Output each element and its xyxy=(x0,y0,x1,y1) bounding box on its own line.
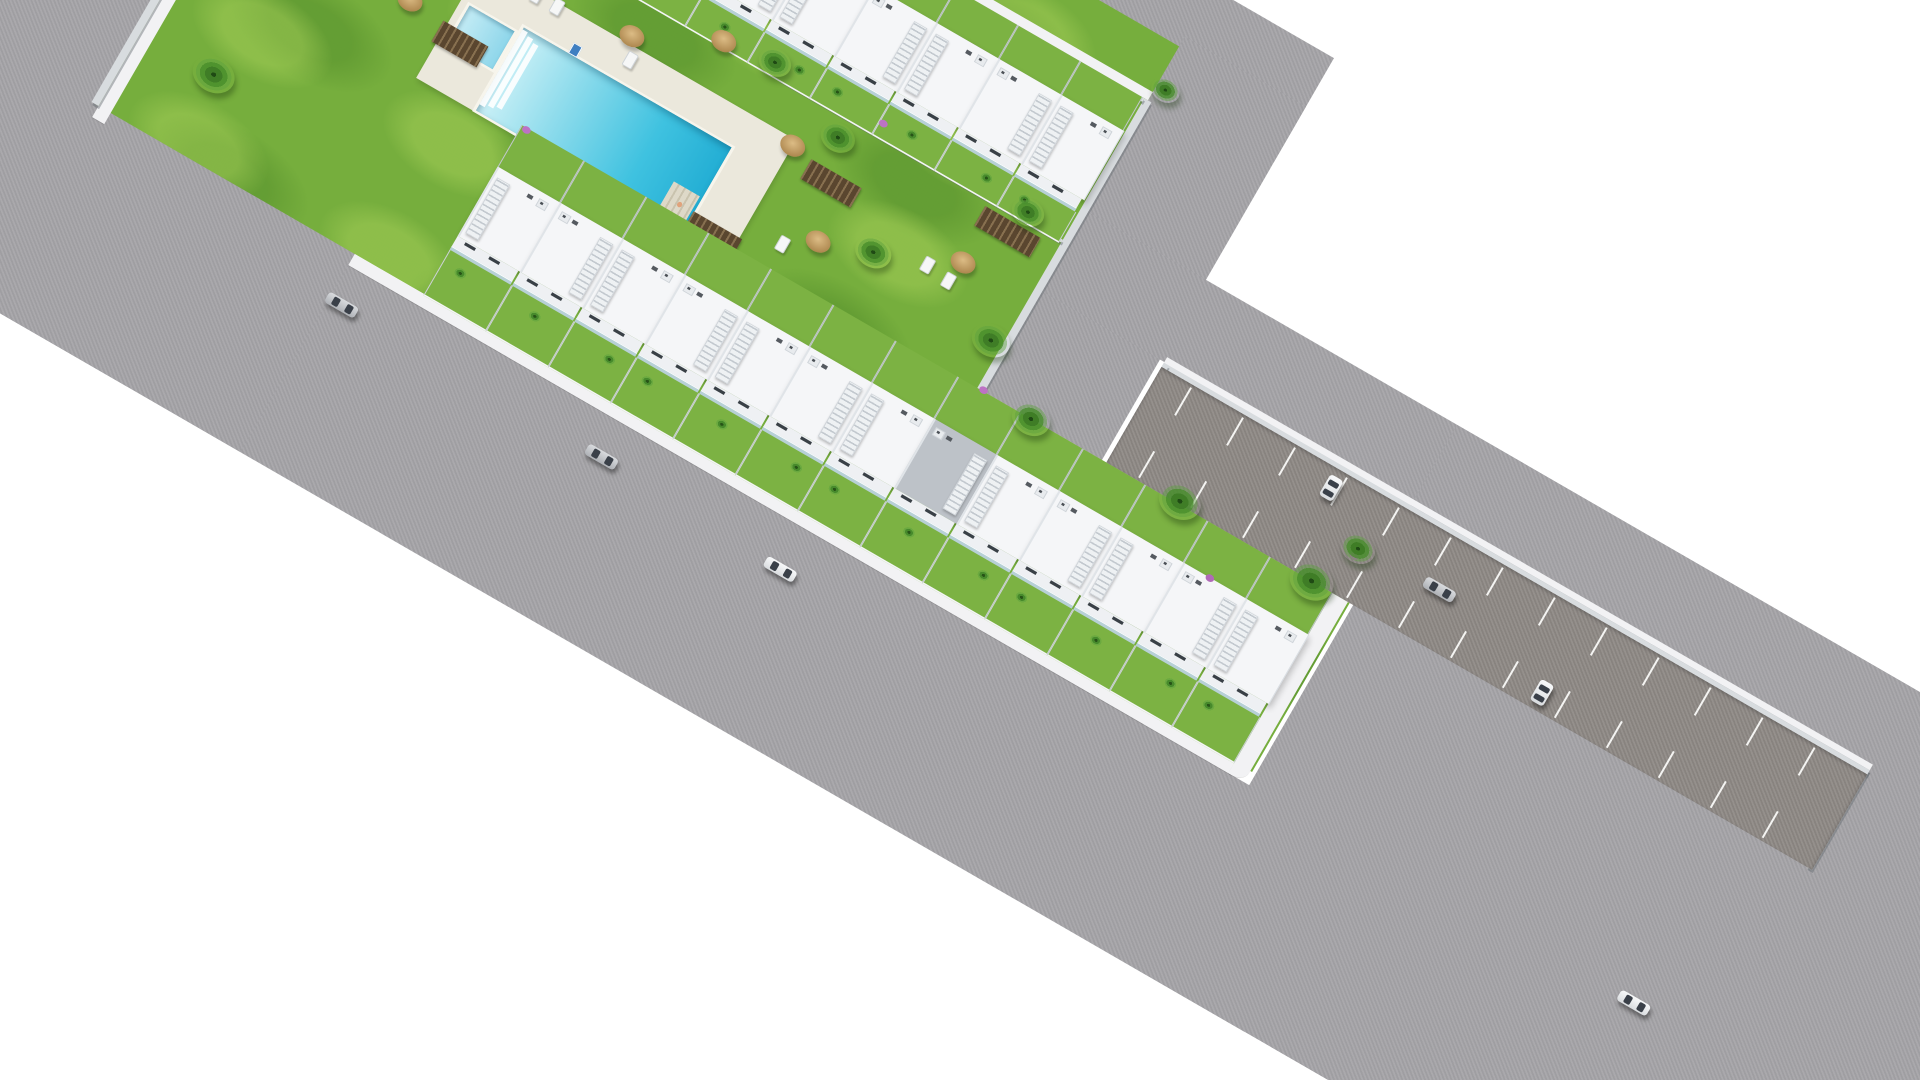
car-rear-window xyxy=(1441,588,1451,599)
car-windshield xyxy=(1623,994,1633,1005)
car-rear-window xyxy=(1636,1002,1646,1013)
car-rear-window xyxy=(1533,693,1545,703)
car-rear-window xyxy=(604,456,614,467)
car-windshield xyxy=(591,448,601,459)
car-windshield xyxy=(1428,581,1438,592)
car-windshield xyxy=(1327,479,1339,489)
aerial-render-scene xyxy=(0,0,1920,1080)
car-windshield xyxy=(1538,684,1550,694)
car-rear-window xyxy=(782,568,792,579)
car-rear-window xyxy=(1322,488,1334,498)
car-rear-window xyxy=(344,304,354,315)
car-windshield xyxy=(769,561,779,572)
car-windshield xyxy=(331,296,341,307)
